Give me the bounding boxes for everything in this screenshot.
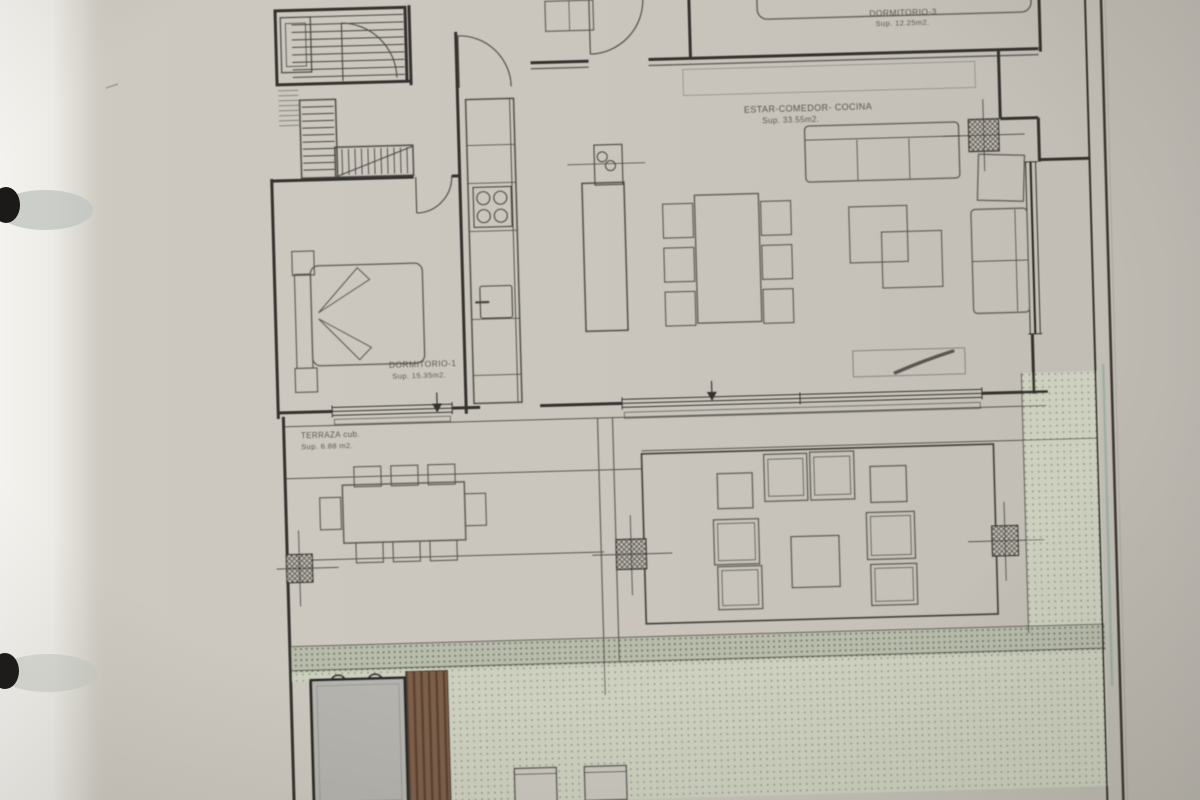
- photo-vignette: [0, 0, 1200, 800]
- floor-plan-canvas: DORMITORIO-3 Sup. 12.25m2. ESTAR-COMEDOR…: [0, 0, 1200, 800]
- floor-plan-photo: DORMITORIO-3 Sup. 12.25m2. ESTAR-COMEDOR…: [0, 0, 1200, 800]
